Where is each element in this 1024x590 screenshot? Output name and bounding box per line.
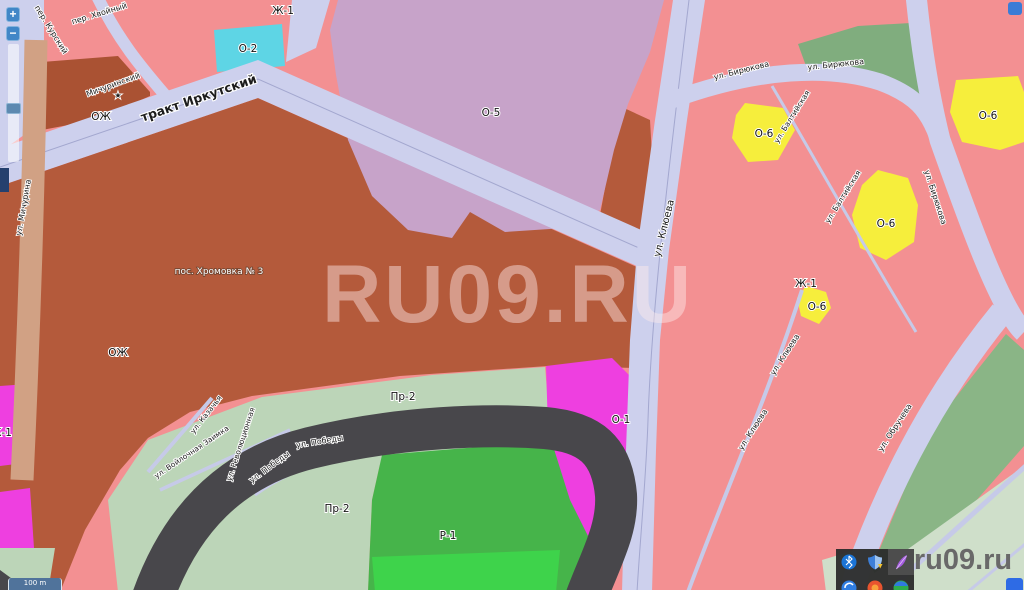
zone-label-pr2-b: Пр-2	[324, 503, 349, 515]
watermark: RU09.RU	[322, 249, 694, 340]
zone-label-zh1-mid: Ж-1	[795, 278, 817, 290]
zone-magenta-sw	[0, 488, 34, 552]
bluetooth-icon[interactable]	[842, 555, 857, 570]
zoom-out-button[interactable]: −	[6, 26, 20, 41]
map-corner-control[interactable]	[1008, 2, 1022, 15]
zone-label-pr2-a: Пр-2	[390, 391, 415, 403]
zone-label-o6-d: О-6	[979, 110, 998, 122]
settlement-label-khromovka: пос. Хромовка № 3	[175, 267, 264, 277]
taskbar-icon[interactable]	[1006, 578, 1023, 590]
zoom-slider-handle[interactable]	[6, 103, 21, 114]
zone-r1-bright-strip	[372, 550, 560, 590]
zone-label-zh1-top: Ж-1	[272, 5, 294, 17]
browser-icon-red[interactable]	[868, 581, 883, 590]
site-logo[interactable]: ru09.ru	[913, 544, 1013, 577]
zone-label-o2: О-2	[239, 43, 258, 55]
defender-shield-icon[interactable]	[868, 555, 883, 570]
zone-label-ozh-main: ОЖ	[108, 347, 128, 359]
zone-label-o6-c: О-6	[808, 301, 827, 313]
zone-navy-fragment	[0, 168, 9, 192]
zone-label-o6-a: О-6	[755, 128, 774, 140]
zoom-in-button[interactable]: +	[6, 7, 20, 22]
zone-label-ozh-pocket: ОЖ	[91, 111, 111, 123]
zone-label-r1: Р-1	[440, 530, 457, 542]
zone-label-o6-b: О-6	[877, 218, 896, 230]
browser-icon-blue[interactable]	[842, 581, 857, 590]
browser-icon-green[interactable]	[894, 581, 909, 590]
zoning-map[interactable]: RU09.RU тракт Иркутский ул. Мичурина пер…	[0, 0, 1024, 590]
zone-label-o5: О-5	[482, 107, 501, 119]
road-michurina	[22, 40, 36, 480]
star-marker: ★	[114, 91, 121, 100]
map-viewport[interactable]: RU09.RU тракт Иркутский ул. Мичурина пер…	[0, 0, 1024, 590]
scale-bar: 100 m	[8, 578, 62, 590]
zone-label-zh1-left: Ж-1	[0, 427, 12, 439]
system-tray-flyout	[836, 549, 914, 590]
zone-label-o1: О-1	[612, 414, 631, 426]
